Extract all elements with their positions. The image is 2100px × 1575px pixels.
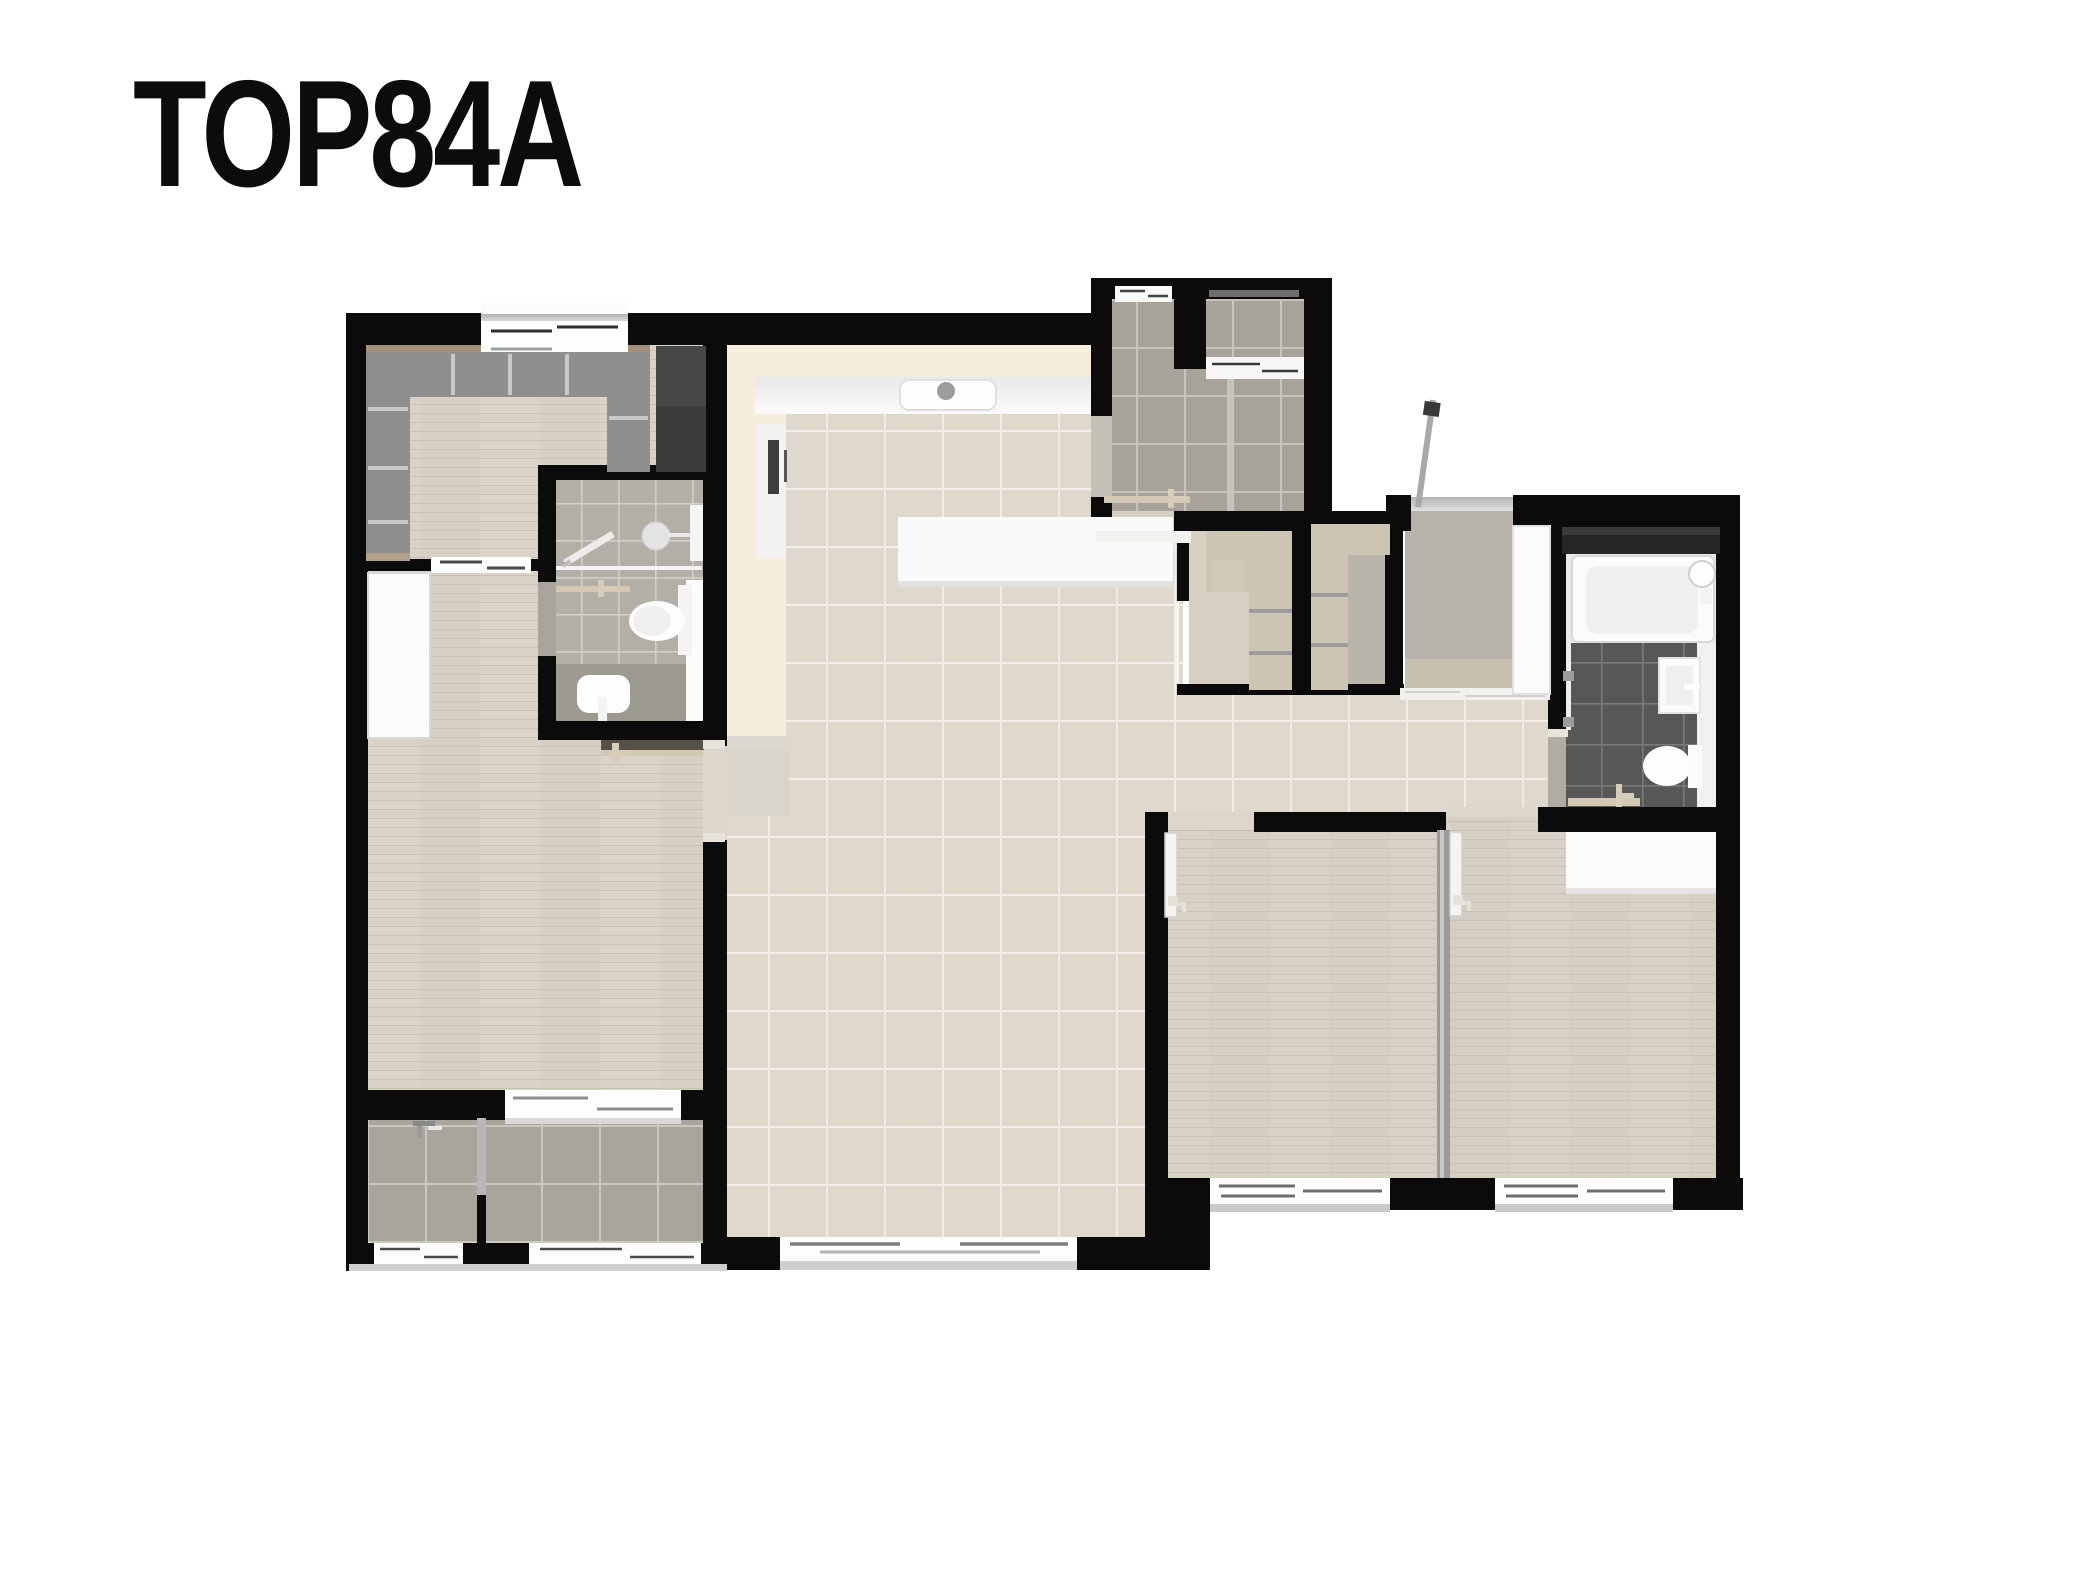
svg-text:TOP84A: TOP84A — [133, 49, 581, 219]
